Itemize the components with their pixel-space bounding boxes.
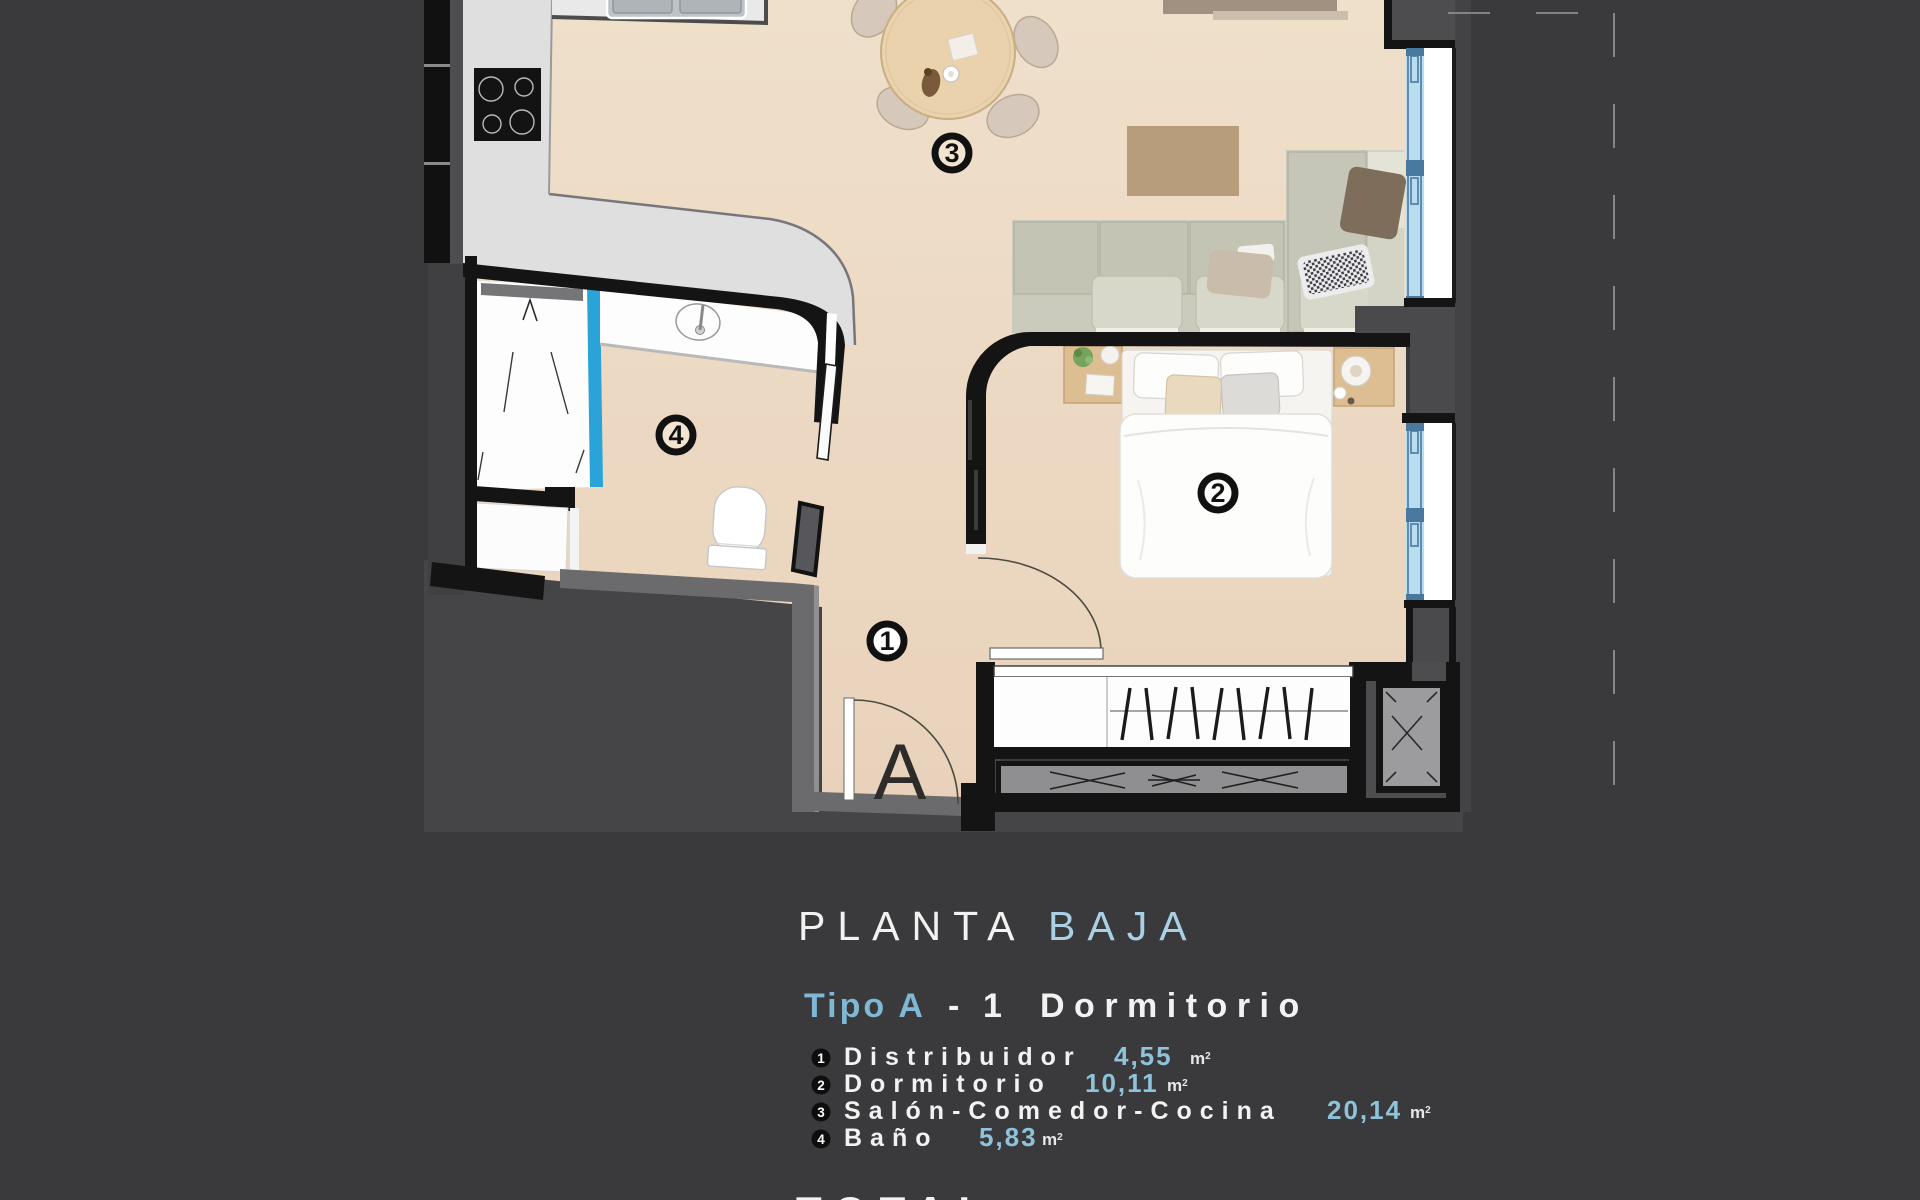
svg-text:4,55: 4,55 xyxy=(1114,1041,1173,1071)
svg-text:TOTAL: TOTAL xyxy=(796,1188,997,1200)
svg-text:m2: m2 xyxy=(1042,1130,1063,1149)
svg-text:20,14: 20,14 xyxy=(1327,1095,1402,1125)
svg-text:PLANTABAJA: PLANTABAJA xyxy=(798,903,1199,949)
svg-text:2: 2 xyxy=(817,1078,825,1093)
svg-text:Tipo A-1Dormitorio: Tipo A-1Dormitorio xyxy=(804,987,1309,1025)
svg-text:3: 3 xyxy=(817,1105,825,1120)
svg-text:m2: m2 xyxy=(1190,1049,1211,1068)
svg-text:5,83: 5,83 xyxy=(979,1122,1038,1152)
svg-text:Baño: Baño xyxy=(844,1124,939,1152)
svg-text:m2: m2 xyxy=(1167,1076,1188,1095)
svg-text:1: 1 xyxy=(817,1051,825,1066)
svg-text:m2: m2 xyxy=(1410,1103,1431,1122)
svg-text:2: 2 xyxy=(1210,478,1225,508)
svg-text:4: 4 xyxy=(668,420,683,450)
svg-text:Salón-Comedor-Cocina: Salón-Comedor-Cocina xyxy=(844,1097,1282,1125)
svg-text:Dormitorio: Dormitorio xyxy=(844,1070,1052,1098)
svg-text:3: 3 xyxy=(944,138,959,168)
svg-text:4: 4 xyxy=(817,1132,825,1147)
svg-text:A: A xyxy=(874,727,927,816)
svg-text:1: 1 xyxy=(879,626,894,656)
svg-text:Distribuidor: Distribuidor xyxy=(844,1043,1082,1071)
svg-text:10,11: 10,11 xyxy=(1085,1068,1159,1098)
